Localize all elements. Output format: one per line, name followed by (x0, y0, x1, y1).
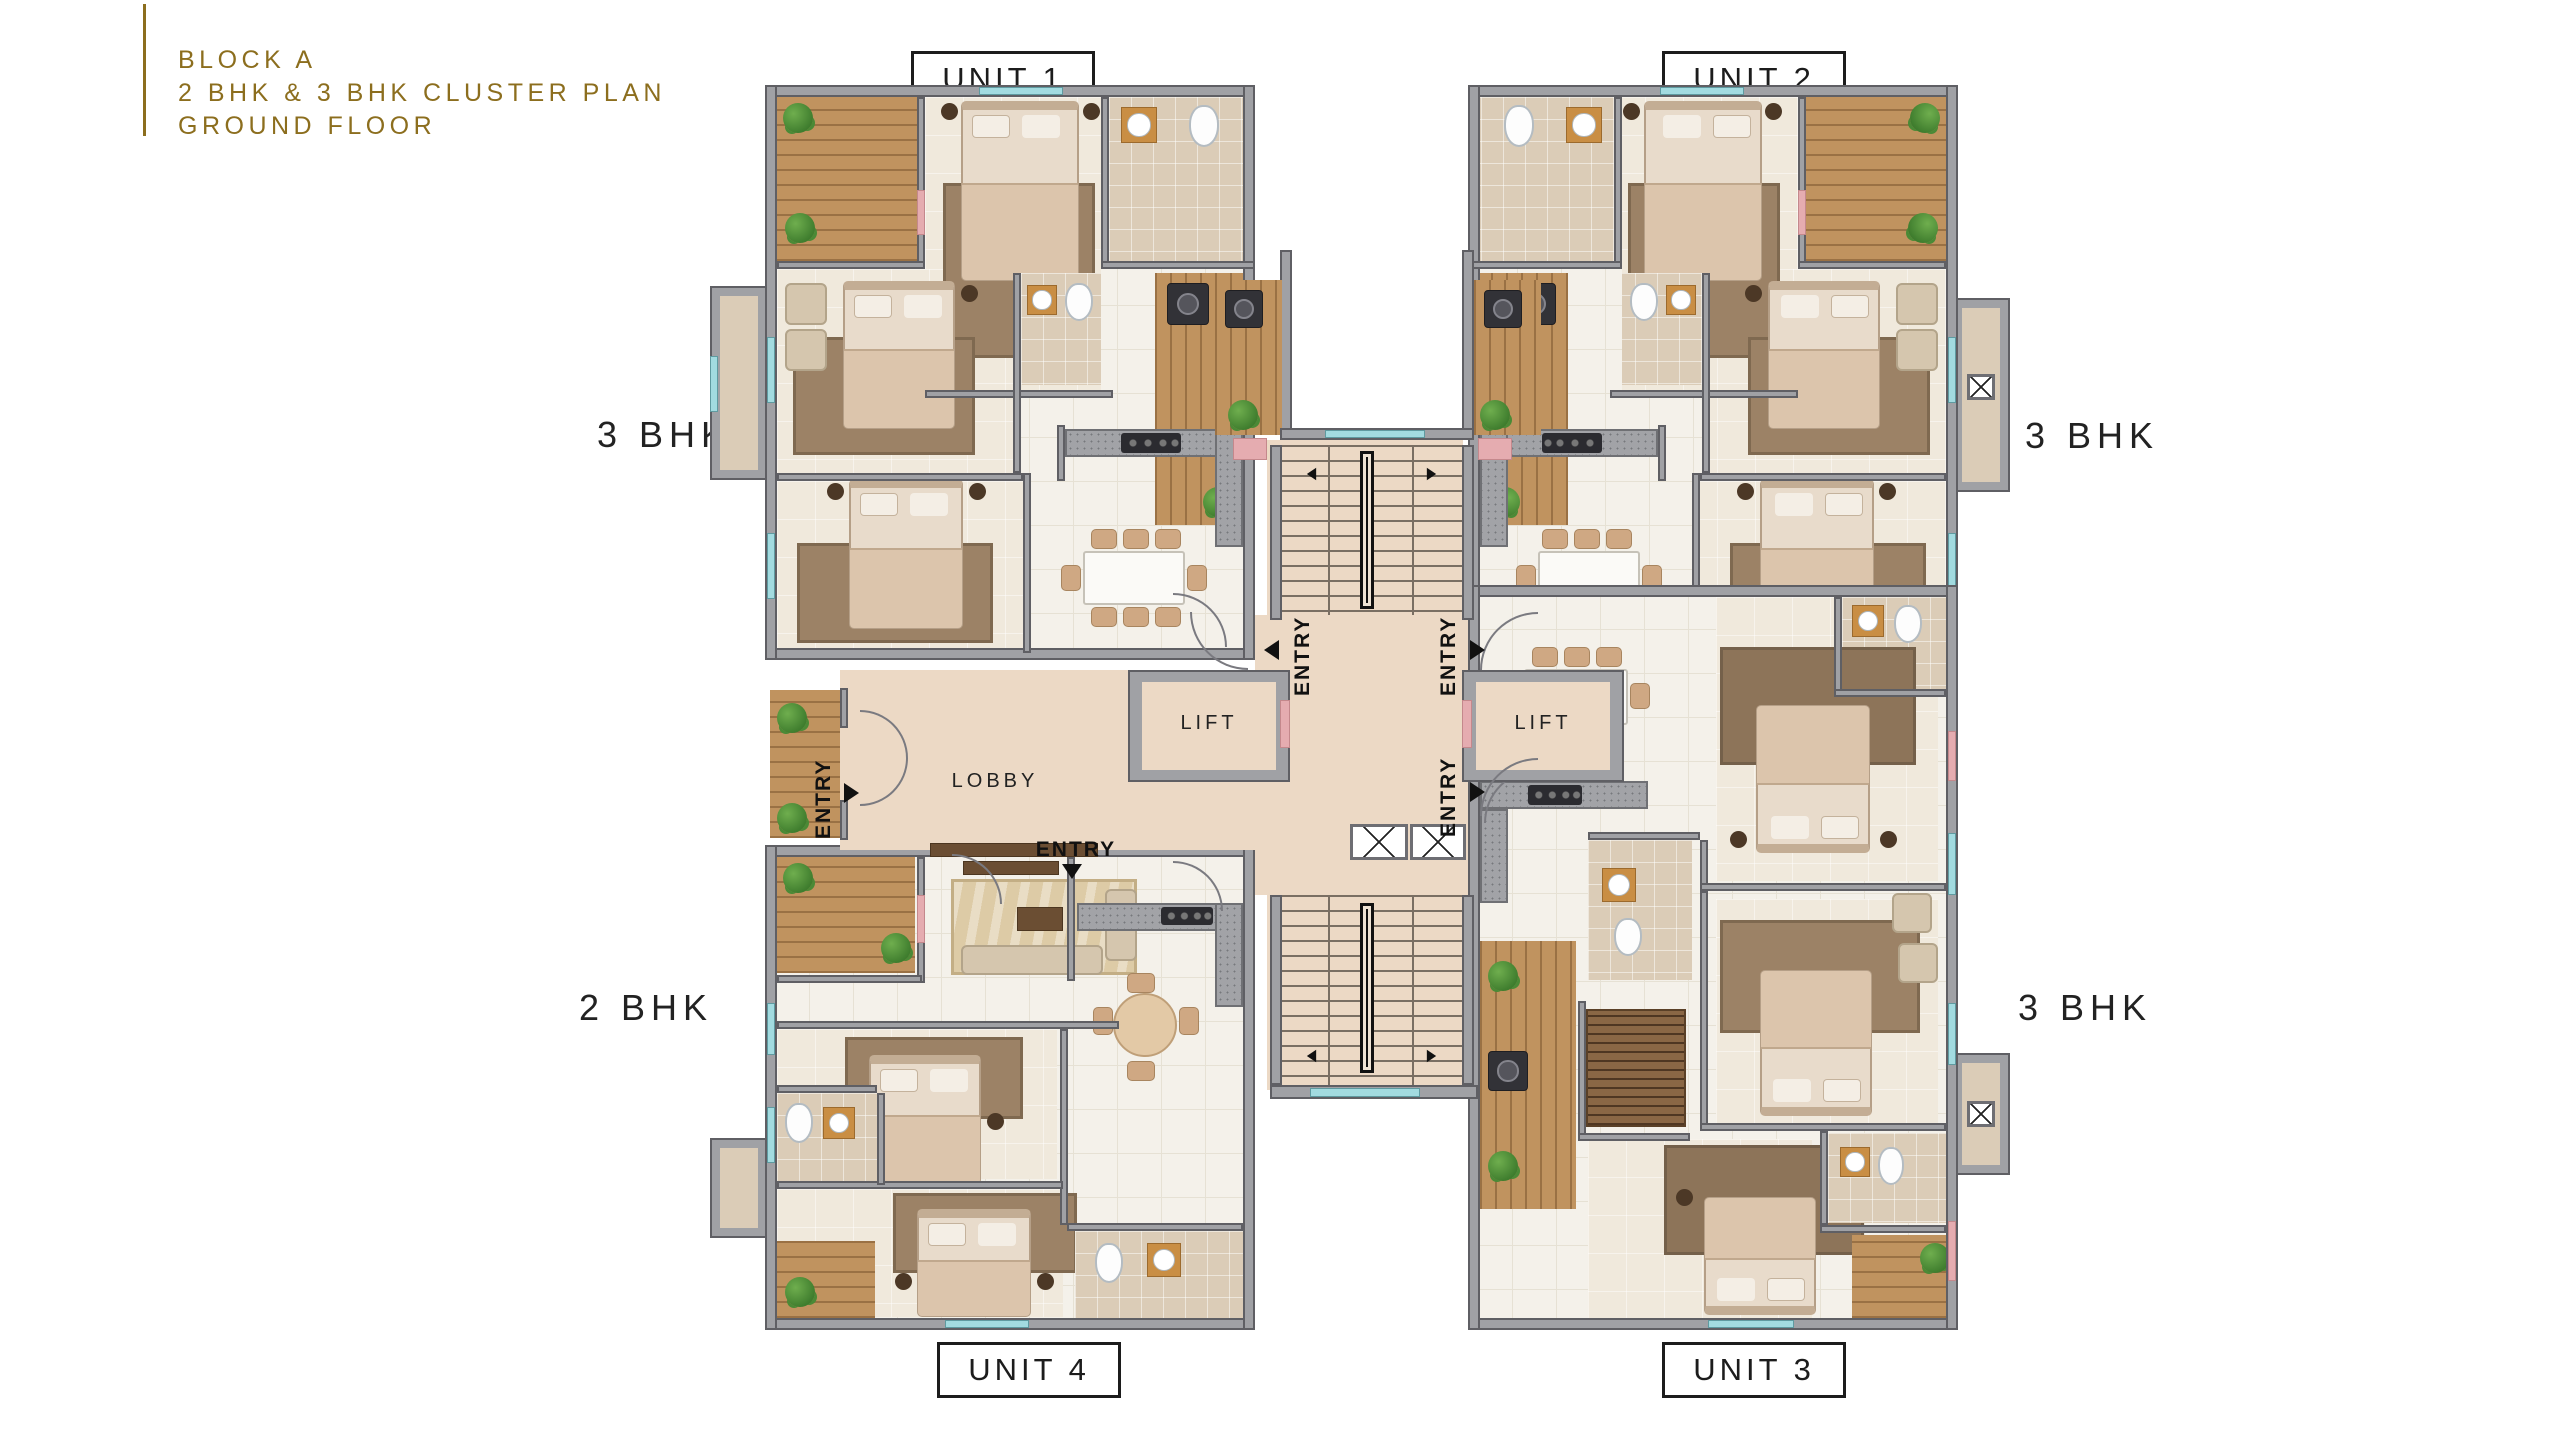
nightstand (1880, 831, 1897, 848)
stair-arrow-icon (1427, 1050, 1436, 1062)
unit-4-label: UNIT 4 (968, 1352, 1090, 1388)
coffee-table (1017, 907, 1063, 931)
sink (1852, 605, 1884, 637)
plant-icon (1908, 213, 1938, 243)
wall (765, 845, 777, 1330)
window-glass (1310, 1088, 1420, 1097)
shaft-x-icon (1967, 374, 1995, 400)
window-glass (767, 533, 775, 599)
plant-icon (1910, 103, 1940, 133)
lift-door-accent (1462, 700, 1472, 748)
wall (777, 1085, 877, 1093)
window-glass (767, 1003, 775, 1055)
sink (1121, 107, 1157, 143)
wall (777, 1021, 1119, 1029)
wall (1614, 97, 1622, 267)
nightstand (1676, 1189, 1693, 1206)
bed (843, 281, 955, 429)
nightstand (1730, 831, 1747, 848)
window-glass (1948, 1003, 1956, 1065)
nightstand (961, 285, 978, 302)
wall (1946, 585, 1958, 1330)
central-core: LIFT LIFT (1128, 250, 1688, 1110)
plant-icon (1488, 1151, 1518, 1181)
title-gold-rule (143, 4, 146, 136)
toilet (1189, 105, 1219, 147)
window-glass (1708, 1320, 1794, 1328)
title-line-2: 2 BHK & 3 BHK CLUSTER PLAN (178, 77, 666, 110)
toilet (1504, 105, 1534, 147)
lift-left-label: LIFT (1142, 712, 1276, 735)
armchair (1892, 893, 1932, 933)
wall (777, 261, 925, 269)
plant-icon (785, 1277, 815, 1307)
door-swing-icon (1480, 612, 1538, 670)
sink (1027, 285, 1057, 315)
window-glass (1660, 87, 1744, 95)
wall (777, 1181, 1063, 1189)
type-label-unit4: 2 BHK (579, 987, 713, 1029)
floor-plan-canvas: BLOCK A 2 BHK & 3 BHK CLUSTER PLAN GROUN… (0, 0, 2561, 1440)
entry-arrow-icon (1264, 640, 1279, 660)
toilet (1095, 1243, 1123, 1283)
window-glass (1948, 833, 1956, 895)
lift-door-accent (1280, 700, 1290, 748)
wall (1462, 895, 1474, 1085)
wall (1834, 689, 1946, 697)
title-line-3: GROUND FLOOR (178, 110, 666, 143)
nightstand (1623, 103, 1640, 120)
washing-machine-icon (1484, 290, 1522, 328)
wall (840, 800, 848, 840)
unit-3-label: UNIT 3 (1693, 1352, 1815, 1388)
stair-divider (1360, 903, 1374, 1073)
door-accent (1478, 438, 1512, 460)
door-accent (917, 895, 925, 943)
wall (1013, 273, 1021, 473)
plant-icon (777, 803, 807, 833)
door-accent (1948, 1221, 1956, 1281)
bed (1768, 281, 1880, 429)
armchair (785, 283, 827, 325)
lift-right-label: LIFT (1476, 712, 1610, 735)
nightstand (827, 483, 844, 500)
window-glass (1325, 430, 1425, 438)
window-glass (767, 337, 775, 403)
bed (1760, 970, 1872, 1116)
sink (1566, 107, 1602, 143)
nightstand (1879, 483, 1896, 500)
type-label-unit3: 3 BHK (2018, 987, 2152, 1029)
plant-icon (783, 103, 813, 133)
entry-label-unit3: ENTRY (1437, 753, 1463, 837)
nightstand (895, 1273, 912, 1290)
wall (1060, 1029, 1068, 1225)
plant-icon (783, 863, 813, 893)
shaft-x-icon (1967, 1101, 1995, 1127)
plant-icon (1480, 400, 1510, 430)
title-line-1: BLOCK A (178, 44, 666, 77)
entry-arrow-icon (1062, 864, 1082, 879)
stair-arrow-icon (1307, 1050, 1316, 1062)
wall (1462, 445, 1474, 620)
window-glass (945, 1320, 1029, 1328)
door-accent (1233, 438, 1267, 460)
wall (1798, 97, 1806, 269)
entry-label-unit2: ENTRY (1437, 612, 1463, 696)
nightstand (987, 1113, 1004, 1130)
door-accent (1798, 190, 1806, 235)
nightstand (1745, 285, 1762, 302)
title-block: BLOCK A 2 BHK & 3 BHK CLUSTER PLAN GROUN… (178, 44, 666, 143)
wall (1270, 445, 1282, 620)
wall (1834, 597, 1842, 697)
shaft-x-icon (1350, 824, 1408, 860)
wall (1270, 895, 1282, 1085)
washing-machine-icon (1225, 290, 1263, 328)
wall (1101, 97, 1109, 267)
nightstand (1083, 103, 1100, 120)
unit-3-label-box: UNIT 3 (1662, 1342, 1846, 1398)
plant-icon (777, 703, 807, 733)
wall (777, 975, 922, 983)
nightstand (1037, 1273, 1054, 1290)
entry-label-unit1: ENTRY (1291, 612, 1317, 696)
lobby-label: LOBBY (905, 770, 1085, 793)
sink (1147, 1243, 1181, 1277)
wall (1702, 273, 1710, 473)
nightstand (941, 103, 958, 120)
stair-arrow-icon (1427, 468, 1436, 480)
wall (1700, 1123, 1946, 1131)
service-bump (712, 1140, 766, 1236)
wall (1462, 250, 1474, 440)
wall (1067, 1223, 1243, 1231)
window-glass (979, 87, 1063, 95)
wall (1820, 1225, 1946, 1233)
bed (961, 101, 1079, 281)
service-bump (1954, 300, 2008, 490)
stair-arrow-icon (1307, 468, 1316, 480)
bed (917, 1209, 1031, 1317)
bed (869, 1055, 981, 1185)
type-label-unit1: 3 BHK (597, 414, 731, 456)
window-glass (710, 356, 718, 412)
bed (1704, 1197, 1816, 1315)
entry-arrow-icon (1470, 640, 1485, 660)
plant-icon (785, 213, 815, 243)
door-swing-icon (1190, 612, 1248, 670)
dining-chair (1061, 565, 1081, 591)
wall (1820, 1131, 1828, 1225)
nightstand (969, 483, 986, 500)
armchair (785, 329, 827, 371)
wall (1798, 261, 1946, 269)
stair-divider (1360, 451, 1374, 609)
door-accent (1948, 731, 1956, 781)
bed (1756, 705, 1870, 853)
sink (823, 1107, 855, 1139)
sink (1840, 1147, 1870, 1177)
plant-icon (1228, 400, 1258, 430)
toilet (1878, 1147, 1904, 1185)
wall (1023, 473, 1031, 653)
wall (1700, 473, 1946, 481)
wall (1700, 891, 1708, 1131)
entry-label-unit4: ENTRY (1028, 838, 1124, 862)
entry-arrow-icon (1470, 782, 1485, 802)
wall (1700, 883, 1946, 891)
unit-4-label-box: UNIT 4 (937, 1342, 1121, 1398)
armchair (1896, 283, 1938, 325)
type-label-unit2: 3 BHK (2025, 415, 2159, 457)
nightstand (1737, 483, 1754, 500)
toilet (785, 1103, 813, 1143)
window-glass (767, 1107, 775, 1163)
bed (849, 479, 963, 629)
wall (877, 1093, 885, 1185)
wall (917, 97, 925, 269)
sofa (961, 945, 1103, 975)
wall (1578, 1133, 1690, 1141)
dining-chair (1091, 607, 1117, 627)
wall (777, 473, 1023, 481)
dining-chair (1091, 529, 1117, 549)
plant-icon (881, 933, 911, 963)
toilet (1065, 283, 1093, 321)
entry-label-lobby: ENTRY (812, 755, 838, 839)
wall (840, 688, 848, 728)
service-bump (712, 288, 766, 478)
armchair (1896, 329, 1938, 371)
service-bump (1954, 1055, 2008, 1173)
door-accent (917, 190, 925, 235)
toilet (1894, 605, 1922, 643)
nightstand (1765, 103, 1782, 120)
window-glass (1948, 337, 1956, 403)
entry-arrow-icon (844, 783, 859, 803)
armchair (1898, 943, 1938, 983)
wall (1057, 425, 1065, 481)
